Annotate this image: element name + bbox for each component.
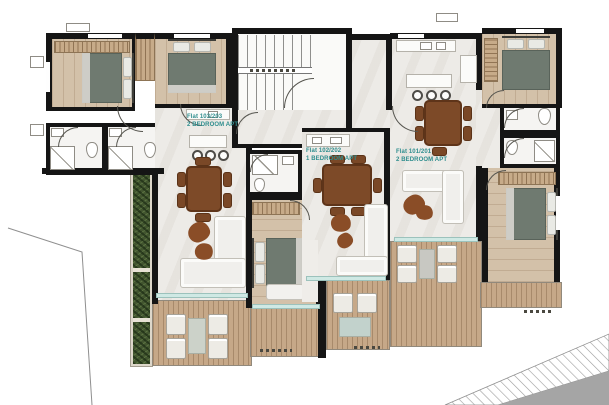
closet-left (135, 33, 155, 81)
sink (282, 156, 294, 165)
wardrobe (484, 38, 498, 82)
dining-chair (195, 157, 211, 166)
flat-label-101-201: Flat 101/201 2 BEDROOM APT (396, 148, 447, 164)
kitchen-sink (420, 42, 432, 50)
flat-title: Flat 103/203 (187, 113, 238, 121)
flat-label-102-202: Flat 102/202 1 BEDROOM APT (306, 147, 357, 163)
sofa (180, 258, 246, 288)
dining-table (322, 164, 372, 206)
glass-balustrade (156, 293, 248, 298)
deck-chair (397, 245, 417, 263)
balcony-right-east (480, 282, 562, 308)
deck-chair (397, 265, 417, 283)
shower (108, 146, 133, 170)
bed (502, 36, 550, 90)
wardrobe (54, 41, 130, 53)
wall-hall-kitchen (386, 34, 392, 110)
dining-table (424, 100, 462, 146)
planter-divider (133, 268, 150, 272)
bed (82, 53, 134, 103)
wall-kitchen-corridor-lower (476, 166, 482, 241)
outdoor-table (419, 249, 435, 279)
window (46, 62, 50, 92)
outdoor-table (339, 317, 371, 337)
sofa (336, 256, 388, 276)
deck-chair (437, 245, 457, 263)
entry-hall-right (346, 34, 390, 132)
dining-chair (463, 126, 472, 141)
dining-chair (313, 178, 322, 193)
dining-chair (195, 213, 211, 222)
kitchen-island (189, 135, 227, 148)
deck-chair (357, 293, 377, 313)
tall-cabinet (460, 55, 477, 83)
bed-end-bench (266, 284, 304, 300)
dining-chair (223, 172, 232, 187)
wall-west-edge (152, 170, 158, 304)
window (556, 196, 560, 230)
ac-unit (436, 13, 458, 22)
site-boundary-line (8, 228, 92, 405)
stair-rail-dashes (250, 69, 298, 72)
flat-subtitle: 2 BEDROOM APT (396, 156, 447, 164)
deck-chair (437, 265, 457, 283)
deck-edge-ticks (524, 310, 552, 313)
kitchen-sink (312, 137, 322, 144)
vent-box (30, 56, 44, 68)
balcony-right-left-part (326, 280, 390, 350)
floor-plan-canvas: Flat 103/203 2 BEDROOM APT Flat 102/202 … (0, 0, 609, 405)
bar-stool (412, 90, 423, 101)
window (174, 34, 210, 38)
shower (534, 140, 555, 162)
window (516, 29, 544, 33)
deck-chair (166, 338, 186, 359)
glass-balustrade (252, 304, 320, 309)
bed (252, 238, 302, 288)
glass-balustrade (306, 276, 386, 281)
flat-title: Flat 102/202 (306, 147, 357, 155)
dining-chair (177, 193, 186, 208)
deck-chair (333, 293, 353, 313)
deck-edge-ticks (260, 349, 292, 352)
cooktop (330, 137, 342, 144)
planter-divider (133, 318, 150, 322)
cooktop (436, 42, 446, 50)
bed (168, 39, 216, 93)
deck-chair (208, 314, 228, 335)
stair-flight-upper (238, 35, 312, 67)
dining-chair (177, 172, 186, 187)
outdoor-table (188, 318, 206, 354)
closet-strip-middle (302, 240, 318, 302)
bed (506, 188, 558, 240)
flat-label-103-203: Flat 103/203 2 BEDROOM APT (187, 113, 238, 129)
wall-balcony-divider (318, 280, 326, 358)
wardrobe (498, 172, 556, 185)
ac-unit (66, 23, 90, 32)
dining-chair (223, 193, 232, 208)
dining-chair (463, 106, 472, 121)
dining-table (186, 166, 222, 212)
flat-subtitle: 1 BEDROOM APT (306, 155, 357, 163)
dining-chair (373, 178, 382, 193)
kitchen-island (406, 74, 452, 88)
sofa (442, 170, 464, 224)
flat-title: Flat 101/201 (396, 148, 447, 156)
vent-box (30, 124, 44, 136)
flat-subtitle: 2 BEDROOM APT (187, 121, 238, 129)
deck-chair (166, 314, 186, 335)
deck-chair (208, 338, 228, 359)
deck-edge-ticks (354, 346, 380, 349)
shower (50, 146, 75, 170)
glass-balustrade (394, 237, 478, 242)
bar-stool (218, 150, 229, 161)
window (88, 34, 122, 38)
window (398, 34, 424, 38)
